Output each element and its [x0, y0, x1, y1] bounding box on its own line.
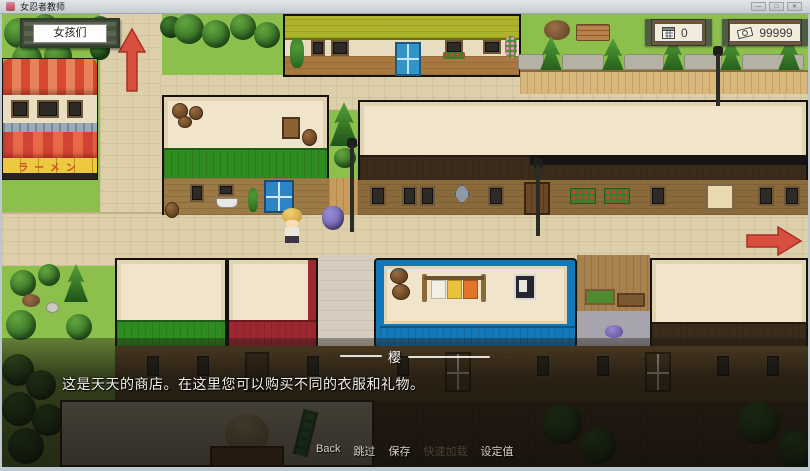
green-roof-band [164, 148, 327, 178]
clothes-rack [422, 274, 486, 302]
cloth-white [431, 280, 446, 299]
stump [544, 20, 570, 40]
garden-bed [585, 289, 615, 305]
lamp-pole [350, 146, 354, 232]
flower-box [604, 188, 630, 204]
building-green-shop [115, 258, 227, 346]
barrel [392, 284, 410, 300]
conifer-tree [64, 264, 88, 302]
barrel [165, 202, 179, 218]
quickmenu-skip[interactable]: 跳过 [353, 443, 375, 459]
door-blue [395, 42, 421, 76]
ramen-sign-text: ラーメン [18, 159, 82, 174]
app-icon [6, 2, 15, 11]
window [311, 40, 325, 56]
barrel [178, 116, 192, 128]
maximize-button[interactable]: □ [769, 2, 784, 11]
plant [248, 188, 258, 212]
character-face [286, 220, 298, 227]
girls-button[interactable]: 女孩们 [33, 24, 107, 43]
basin [216, 198, 238, 208]
barrel [302, 129, 317, 146]
character-skirt [285, 236, 299, 243]
poster [519, 280, 527, 292]
window [758, 186, 774, 206]
stone-wall [518, 54, 544, 70]
olive-roof [285, 16, 519, 40]
cloth-orange [463, 280, 478, 299]
tree [38, 264, 60, 286]
tree [6, 310, 36, 340]
dialogue-text: 这是天天的商店。在这里您可以购买不同的衣服和礼物。 [62, 374, 425, 394]
stump [22, 294, 40, 307]
rock [46, 302, 59, 313]
notice-board [706, 184, 734, 210]
game-window: 女忍者教师 — □ ✕ [0, 0, 810, 471]
player-character[interactable] [280, 208, 304, 248]
ramen-balcony-rail [3, 123, 97, 132]
window [11, 100, 29, 118]
tree [10, 270, 36, 296]
book-pile [576, 24, 610, 41]
fence [520, 70, 808, 94]
flowers-red [443, 52, 465, 59]
diamond-sign [454, 184, 470, 204]
tree [66, 314, 92, 340]
quickmenu-quickload: 快速加载 [423, 443, 467, 459]
speaker-line-left [340, 355, 382, 357]
ramen-awning-top [3, 59, 97, 95]
window [331, 40, 349, 56]
lamp-pole [536, 166, 540, 236]
shopfront-a [162, 178, 331, 215]
ramen-awning-lower [3, 132, 97, 160]
exit-arrow-up-icon[interactable] [118, 28, 146, 92]
shopfront-b [358, 180, 808, 215]
close-button[interactable]: ✕ [787, 2, 802, 11]
garden-bed [617, 293, 645, 307]
fence-garden [577, 255, 650, 351]
ramen-shop: ラーメン [2, 58, 98, 180]
game-viewport[interactable]: ラーメン 女孩们 [2, 14, 808, 467]
building-green-roof [162, 95, 329, 178]
tree [230, 14, 256, 40]
tree [202, 20, 230, 48]
dark-roof-section [530, 155, 806, 165]
character-legs [293, 243, 296, 248]
money-counter-panel: 99999 [722, 19, 808, 46]
stone-wall [624, 54, 664, 70]
day-counter-value: 0 [681, 26, 688, 40]
building-dark-roof [358, 100, 808, 180]
tree [254, 22, 280, 48]
window-flowerbox [483, 40, 501, 54]
barrel [390, 268, 408, 284]
window [67, 100, 83, 118]
window [218, 184, 234, 196]
plant [290, 38, 304, 68]
vase [322, 206, 344, 230]
ramen-storefront [3, 173, 97, 179]
flower-box [570, 188, 596, 204]
window-controls: — □ ✕ [751, 2, 802, 11]
flowers-pink [505, 36, 517, 58]
window [190, 184, 204, 202]
window [370, 186, 386, 206]
speaker-line-right [408, 356, 490, 358]
window [37, 100, 59, 118]
cloth-yellow [447, 280, 462, 299]
building-olive [283, 14, 521, 77]
window [402, 186, 417, 206]
character-legs [288, 243, 291, 248]
quick-menu: Back 跳过 保存 快速加载 设定值 [316, 443, 513, 459]
ramen-wall [3, 95, 97, 123]
titlebar: 女忍者教师 — □ ✕ [0, 0, 810, 14]
calendar-icon [662, 26, 675, 39]
quickmenu-save[interactable]: 保存 [388, 443, 410, 459]
dialogue-box[interactable]: 樱 这是天天的商店。在这里您可以购买不同的衣服和礼物。 Back 跳过 保存 快… [2, 338, 808, 467]
building-red-shop [227, 258, 318, 346]
exit-arrow-right-icon[interactable] [746, 226, 802, 256]
window [420, 186, 435, 206]
building-blue-shop [374, 258, 577, 348]
slime [605, 325, 623, 338]
blue-shop-roof [384, 266, 567, 324]
window-title: 女忍者教师 [20, 0, 65, 14]
dark-window [514, 274, 536, 300]
building-right-shop [650, 258, 808, 348]
day-counter-panel: 0 [645, 19, 712, 46]
speaker-name: 樱 [388, 347, 401, 366]
money-icon [737, 26, 753, 39]
roof-hatch [282, 117, 300, 139]
tree [174, 14, 204, 44]
window [650, 186, 666, 206]
lamp-pole [716, 54, 720, 106]
quickmenu-settings[interactable]: 设定值 [480, 443, 513, 459]
barrel [189, 106, 203, 120]
red-roof-edge [308, 260, 316, 320]
window [784, 186, 800, 206]
girls-sign: 女孩们 [20, 18, 120, 48]
window [488, 186, 504, 206]
stone-path [318, 255, 374, 351]
minimize-button[interactable]: — [751, 2, 766, 11]
quickmenu-back[interactable]: Back [316, 443, 340, 459]
money-value: 99999 [759, 26, 792, 40]
stone-wall [562, 54, 604, 70]
